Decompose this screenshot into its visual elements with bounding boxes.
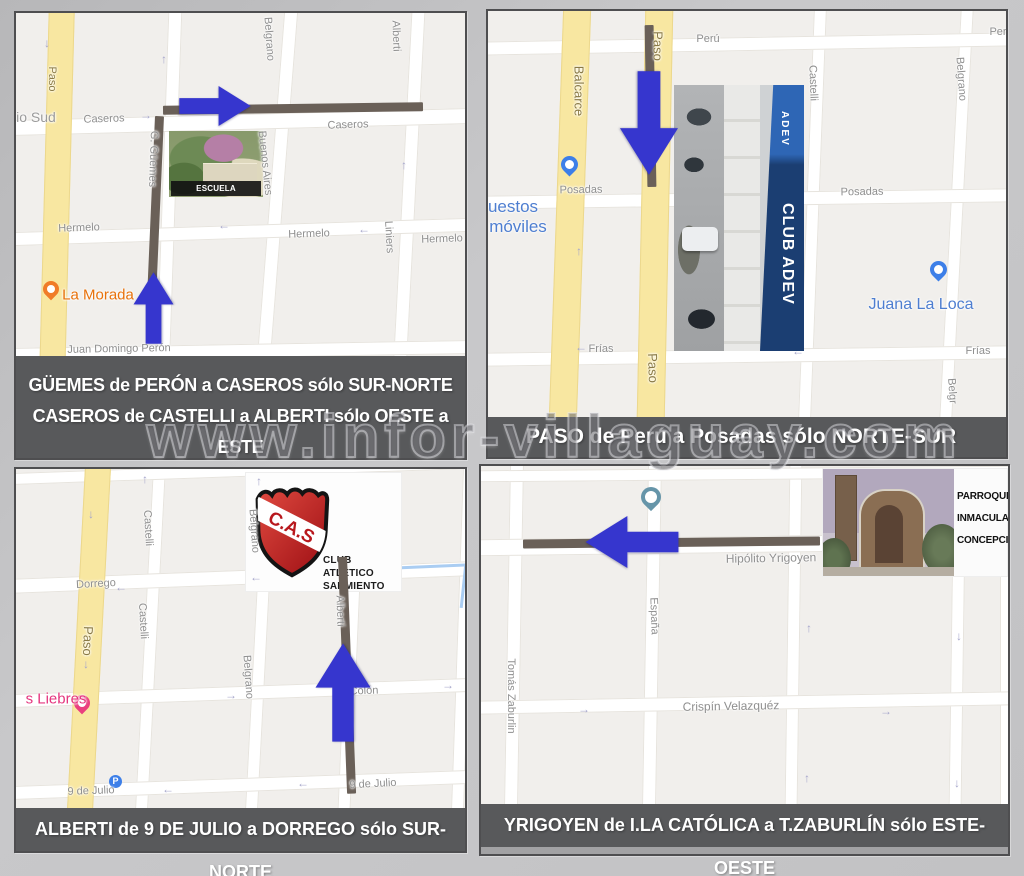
school-photo-caption: ESCUELA PIEDRABUENA: [171, 181, 261, 196]
oneway-arrow-icon: ↑: [401, 158, 407, 172]
photo-street: [674, 85, 724, 351]
club-adev-small-label: ADEV: [779, 111, 790, 147]
street-label: G. Güemes: [146, 131, 160, 188]
oneway-arrow-icon: ←: [250, 570, 262, 584]
street-label: Frías: [965, 345, 990, 357]
oneway-arrow-icon: ←: [575, 340, 587, 354]
street-mid: [785, 466, 803, 804]
oneway-arrow-icon: →: [225, 688, 237, 702]
poi-label: uestos: [488, 197, 538, 217]
area-label: io Sud: [16, 109, 56, 125]
oneway-arrow-icon: →: [140, 108, 152, 122]
caption-bar: ALBERTI de 9 DE JULIO a DORREGO sólo SUR…: [16, 808, 465, 851]
arrow-north-icon: [316, 638, 371, 748]
map-alberti: C.A.S CLUB ATLÉTICO SARMIENTO P PasoCast…: [16, 469, 465, 808]
street-label: Caseros: [327, 118, 368, 131]
oneway-arrow-icon: ↑: [256, 474, 262, 488]
cas-shield-icon: C.A.S: [252, 476, 332, 588]
street-label: Alberti: [389, 20, 402, 52]
church-portal: [875, 505, 903, 563]
street-label: Hermelo: [421, 232, 463, 245]
oneway-arrow-icon: →: [442, 678, 454, 692]
oneway-arrow-icon: →: [880, 704, 892, 718]
parish-card: PARROQUIA INMACULADA CONCEPCIÓN: [823, 469, 1007, 576]
oneway-arrow-icon: ↑: [161, 52, 167, 66]
parish-label: PARROQUIA INMACULADA CONCEPCIÓN: [957, 469, 1007, 576]
church-steps: [823, 567, 954, 576]
poi-label: La Morada: [62, 287, 134, 304]
traffic-flyer: ESCUELA PIEDRABUENA Pasoio SudCaserosCas…: [0, 0, 1024, 876]
panel-paso: ADEV CLUB ADEV PerúPerBalcarcePasoPasoCa…: [486, 9, 1008, 459]
oneway-arrow-icon: ↓: [88, 507, 94, 521]
oneway-arrow-icon: ←: [792, 344, 804, 358]
school-building: [203, 163, 258, 182]
caption-line: YRIGOYEN de I.LA CATÓLICA a T.ZABURLÍN s…: [481, 804, 1008, 876]
street-label: 9 de Julio: [349, 777, 397, 791]
oneway-arrow-icon: ←: [297, 776, 309, 790]
street-label: Frías: [588, 343, 613, 355]
street-label: Caseros: [83, 112, 124, 125]
road-label: Paso: [645, 353, 661, 383]
map-guemes-caseros: ESCUELA PIEDRABUENA Pasoio SudCaserosCas…: [16, 13, 465, 370]
poi-label: s Liebres: [26, 691, 87, 708]
watermark: www.infor-villaguay.com: [146, 402, 961, 471]
club-adev-photo: ADEV CLUB ADEV: [674, 85, 804, 351]
caption-line: GÜEMES de PERÓN a CASEROS sólo SUR-NORTE: [16, 370, 465, 401]
oneway-arrow-icon: ←: [115, 580, 127, 594]
street-label: Hipólito Yrigoyen: [726, 550, 817, 566]
map-yrigoyen: PARROQUIA INMACULADA CONCEPCIÓN Hipólito…: [481, 466, 1008, 804]
caption-bar: YRIGOYEN de I.LA CATÓLICA a T.ZABURLÍN s…: [481, 804, 1008, 854]
street-tomas-zaburlin: [504, 466, 524, 804]
poi-label: móviles: [489, 217, 547, 237]
street-label: Hermelo: [58, 221, 100, 234]
cas-logo: C.A.S CLUB ATLÉTICO SARMIENTO: [246, 473, 401, 591]
oneway-arrow-icon: ↑: [806, 621, 812, 635]
church-facade: [859, 489, 925, 567]
street-label: Castelli: [806, 65, 819, 101]
street-label: Belgr: [945, 378, 959, 404]
road-label: Paso: [80, 626, 96, 656]
club-wall: [724, 85, 760, 351]
street-label: Perú: [696, 33, 719, 45]
street-label: Posadas: [840, 186, 883, 199]
street-label: Castelli: [141, 510, 155, 547]
road-label: Paso: [651, 31, 666, 61]
panel-alberti: C.A.S CLUB ATLÉTICO SARMIENTO P PasoCast…: [14, 467, 467, 853]
oneway-arrow-icon: ↑: [142, 472, 148, 486]
street-label: Liniers: [382, 221, 396, 254]
arrow-south-icon: [620, 59, 678, 187]
street-label: Crispín Velazquéz: [683, 698, 780, 714]
map-paso: ADEV CLUB ADEV PerúPerBalcarcePasoPasoCa…: [488, 11, 1006, 417]
street-label: Dorrego: [76, 577, 116, 591]
street-label: Alberti: [333, 595, 346, 627]
street-label: Posadas: [559, 184, 602, 197]
school-photo: ESCUELA PIEDRABUENA: [169, 131, 263, 197]
church-photo: [823, 469, 954, 576]
street-label: Tomás Zaburlin: [505, 658, 517, 733]
oneway-arrow-icon: ↓: [44, 36, 50, 50]
arrow-west-icon: [576, 516, 688, 568]
street-east-edge: [451, 469, 465, 808]
parked-car: [682, 227, 718, 251]
street-label: Hermelo: [288, 227, 330, 240]
street-label: Per: [989, 26, 1006, 38]
oneway-arrow-icon: ←: [218, 218, 230, 232]
panel-yrigoyen: PARROQUIA INMACULADA CONCEPCIÓN Hipólito…: [479, 464, 1010, 856]
oneway-arrow-icon: ←: [162, 782, 174, 796]
oneway-arrow-icon: ↓: [956, 629, 962, 643]
oneway-arrow-icon: ←: [358, 222, 370, 236]
poi-label: Juana La Loca: [869, 296, 974, 314]
arrow-east-icon: [169, 86, 261, 126]
road-label: Balcarce: [572, 66, 587, 117]
oneway-arrow-icon: ↑: [804, 771, 810, 785]
caption-line: ALBERTI de 9 DE JULIO a DORREGO sólo SUR…: [16, 808, 465, 876]
panel-guemes-caseros: ESCUELA PIEDRABUENA Pasoio SudCaserosCas…: [14, 11, 467, 460]
street-label: Castelli: [136, 603, 150, 640]
street-label: 9 de Julio: [67, 784, 114, 798]
oneway-arrow-icon: ↑: [576, 244, 582, 258]
street-label: Belgrano: [261, 17, 276, 62]
club-adev-label: CLUB ADEV: [778, 203, 796, 305]
street-label: España: [647, 597, 660, 635]
street-alberti: [392, 13, 426, 370]
road-label: Paso: [46, 66, 58, 91]
oneway-arrow-icon: ↓: [83, 657, 89, 671]
oneway-arrow-icon: ↓: [954, 776, 960, 790]
cas-club-name: CLUB ATLÉTICO SARMIENTO: [323, 554, 385, 593]
arrow-north-icon: [134, 271, 174, 346]
oneway-arrow-icon: →: [578, 702, 590, 716]
